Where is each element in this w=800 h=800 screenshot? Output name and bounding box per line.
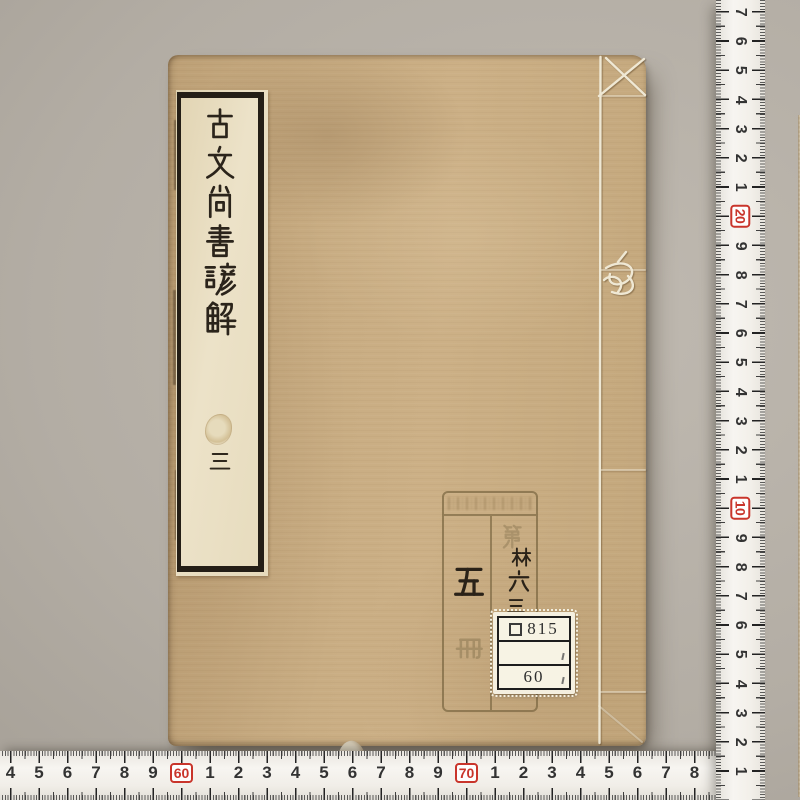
ruler-number: 2 — [716, 440, 765, 460]
ruler-number: 3 — [716, 411, 765, 431]
ruler-bottom: 456789601234567897012345678 — [0, 751, 757, 800]
ruler-number: 6 — [627, 751, 649, 800]
ruler-number: 5 — [716, 60, 765, 80]
ruler-number: 3 — [716, 119, 765, 139]
ruler-number: 7 — [85, 751, 107, 800]
ruler-number: 4 — [716, 674, 765, 694]
ruler-number: 4 — [285, 751, 307, 800]
ruler-number: 9 — [427, 751, 449, 800]
ruler-number: 7 — [370, 751, 392, 800]
ruler-number: 9 — [142, 751, 164, 800]
ruler-number: 4 — [716, 382, 765, 402]
call-number-label: 815 60 — [493, 612, 575, 694]
ruler-number: 2 — [513, 751, 535, 800]
ruler-number: 9 — [716, 236, 765, 256]
ruler-number: 6 — [716, 323, 765, 343]
ruler-number: 3 — [256, 751, 278, 800]
ruler-number: 20 — [716, 206, 765, 226]
ruler-vertical: 76543212098765432110987654321 — [716, 0, 765, 800]
ruler-number: 4 — [570, 751, 592, 800]
ruler-number: 8 — [716, 265, 765, 285]
ruler-number: 9 — [716, 528, 765, 548]
ruler-number: 5 — [313, 751, 335, 800]
book-title — [181, 106, 258, 337]
stamp-volume-suffix — [455, 634, 483, 664]
ruler-number: 5 — [28, 751, 50, 800]
call-number-value: 815 — [527, 619, 559, 639]
slip-stain — [205, 414, 232, 445]
title-slip-frame — [177, 92, 264, 572]
shelf-mark-char-1 — [511, 547, 532, 568]
ruler-number: 5 — [598, 751, 620, 800]
ruler-number: 4 — [716, 90, 765, 110]
ruler-number: 8 — [399, 751, 421, 800]
ruler-number: 7 — [655, 751, 677, 800]
ruler-number: 7 — [716, 586, 765, 606]
stamp-divider — [490, 516, 492, 710]
call-number-line-3: 60 — [499, 664, 569, 688]
ruler-number: 8 — [716, 557, 765, 577]
ruler-number: 1 — [716, 177, 765, 197]
ruler-number: 1 — [484, 751, 506, 800]
ruler-number: 5 — [716, 644, 765, 664]
ruler-number: 2 — [716, 732, 765, 752]
ruler-number: 2 — [228, 751, 250, 800]
ruler-number: 6 — [57, 751, 79, 800]
ruler-number: 10 — [716, 498, 765, 518]
ruler-number: 3 — [541, 751, 563, 800]
ruler-number: 1 — [199, 751, 221, 800]
call-number-value: 60 — [524, 667, 545, 687]
ruler-number: 70 — [456, 751, 478, 800]
shelf-mark-char-2 — [505, 570, 533, 595]
ruler-number: 6 — [716, 31, 765, 51]
call-number-line-1: 815 — [499, 618, 569, 640]
label-tick-mark — [561, 677, 564, 684]
photo-scene: 815 60 456789601234567897012345678 76543… — [0, 0, 800, 800]
stamp-header-illegible-text — [448, 497, 532, 510]
ruler-number: 3 — [716, 703, 765, 723]
ruler-number: 8 — [684, 751, 706, 800]
ruler-number: 1 — [716, 469, 765, 489]
ruler-number: 2 — [716, 148, 765, 168]
title-slip — [176, 90, 268, 576]
ruler-number: 6 — [716, 615, 765, 635]
label-tick-mark — [561, 653, 564, 660]
ruler-number: 60 — [171, 751, 193, 800]
volume-label — [181, 448, 258, 474]
katakana-ro-glyph — [509, 623, 522, 636]
stamp-header — [444, 493, 536, 516]
ruler-number: 8 — [114, 751, 136, 800]
ruler-number: 7 — [716, 294, 765, 314]
ruler-number: 1 — [716, 761, 765, 781]
stamp-volume-count — [451, 562, 487, 602]
ruler-number: 6 — [342, 751, 364, 800]
call-number-line-2 — [499, 640, 569, 664]
call-number-frame: 815 60 — [497, 616, 571, 690]
ruler-number: 7 — [716, 2, 765, 22]
ruler-number: 4 — [0, 751, 22, 800]
ruler-number: 5 — [716, 352, 765, 372]
